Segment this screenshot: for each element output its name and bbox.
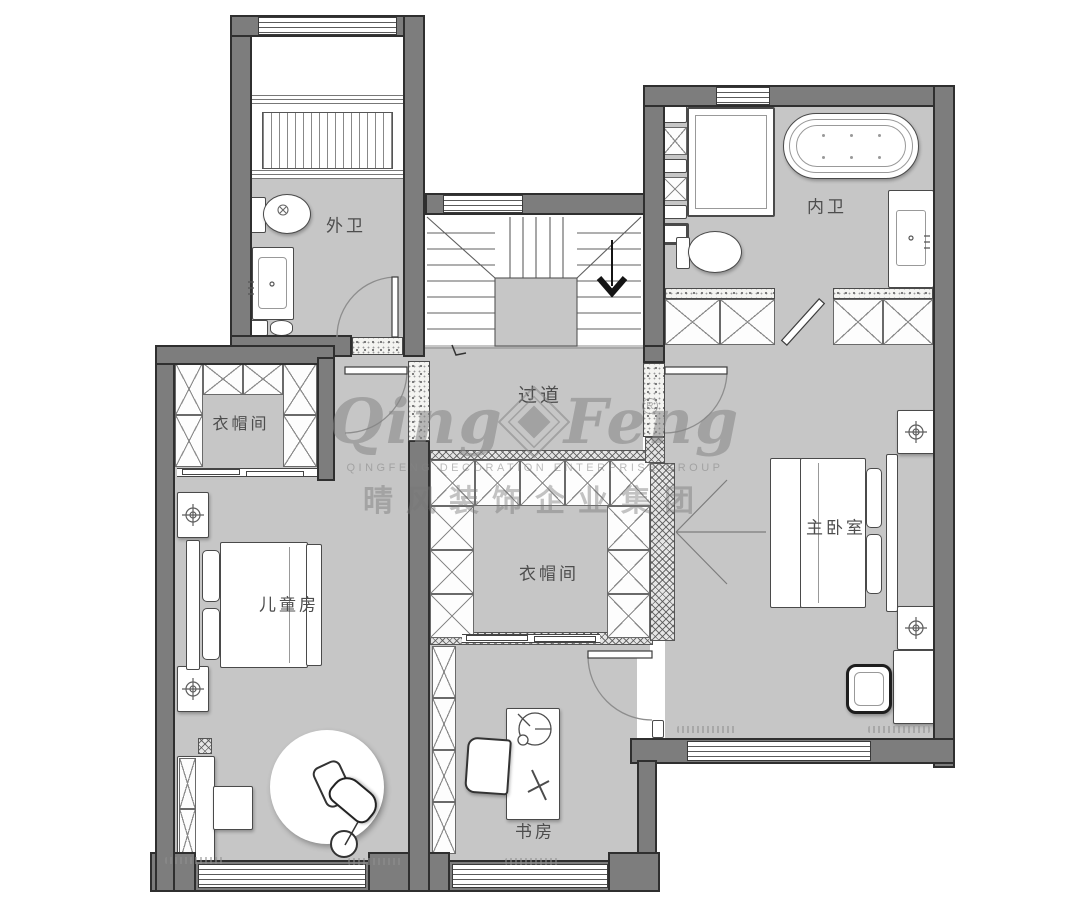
plan-linework: [0, 0, 1080, 910]
kids-door-arc: [345, 371, 407, 433]
tv-sightlines: [676, 480, 766, 584]
room-label-hallway: 过道: [518, 381, 562, 408]
inner-bath-door-leaf: [782, 299, 825, 345]
registered-mark: R: [642, 398, 658, 414]
desk-lamp-symbol: [518, 713, 551, 745]
room-label-study: 书房: [515, 818, 555, 843]
annotation-smudge: [505, 858, 560, 865]
room-label-cloak-left: 衣帽间: [212, 410, 269, 434]
room-label-kids: 儿童房: [259, 591, 319, 616]
stair-direction-tick: [452, 345, 466, 355]
staircase: [425, 217, 643, 348]
room-label-master: 主卧室: [806, 514, 866, 539]
annotation-smudge: [677, 726, 737, 733]
door-leaves: [345, 277, 824, 658]
study-door-leaf: [588, 651, 652, 658]
floor-plan: 外卫 内卫 过道 衣帽间 衣帽间 主卧室 儿童房 书房 Qing Feng QI…: [0, 0, 1080, 910]
kids-door-leaf: [345, 367, 407, 374]
study-door-arc: [588, 656, 652, 720]
master-door-leaf: [665, 367, 727, 374]
outer-bath-door-arc: [337, 277, 395, 337]
outer-bath-door-leaf: [392, 277, 398, 337]
master-door-arc: [665, 371, 727, 433]
toilet-flush-symbol: [278, 205, 288, 215]
annotation-smudge: [165, 857, 223, 864]
room-label-cloak-center: 衣帽间: [519, 560, 579, 585]
annotation-smudge: [348, 858, 403, 865]
pen-symbol: [528, 770, 549, 800]
room-label-outer-bath: 外卫: [326, 212, 366, 237]
annotation-smudge: [868, 726, 930, 733]
side-table-stem: [345, 822, 358, 845]
room-label-inner-bath: 内卫: [807, 193, 847, 218]
stairs-down-arrow: [599, 240, 625, 293]
